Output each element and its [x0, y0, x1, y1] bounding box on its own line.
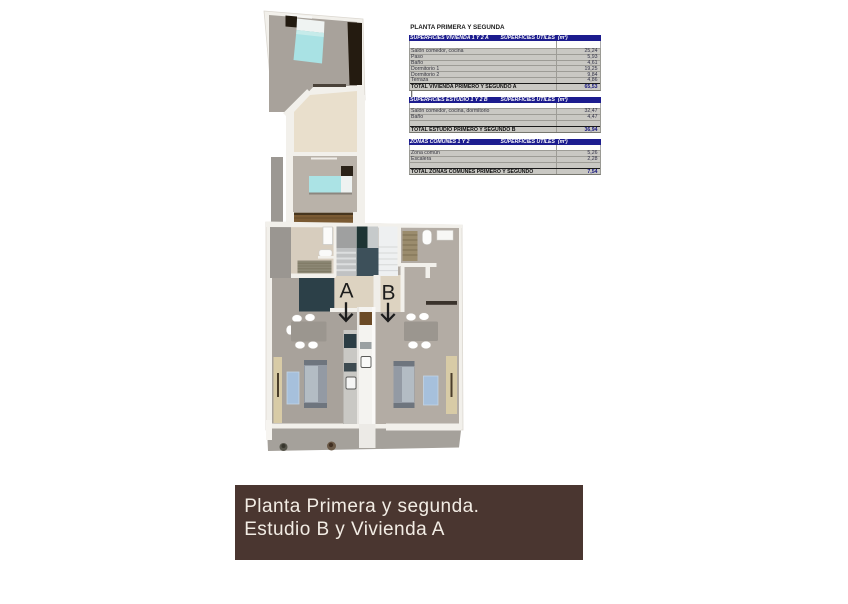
svg-text:A: A	[340, 280, 354, 303]
svg-text:B: B	[382, 282, 396, 305]
